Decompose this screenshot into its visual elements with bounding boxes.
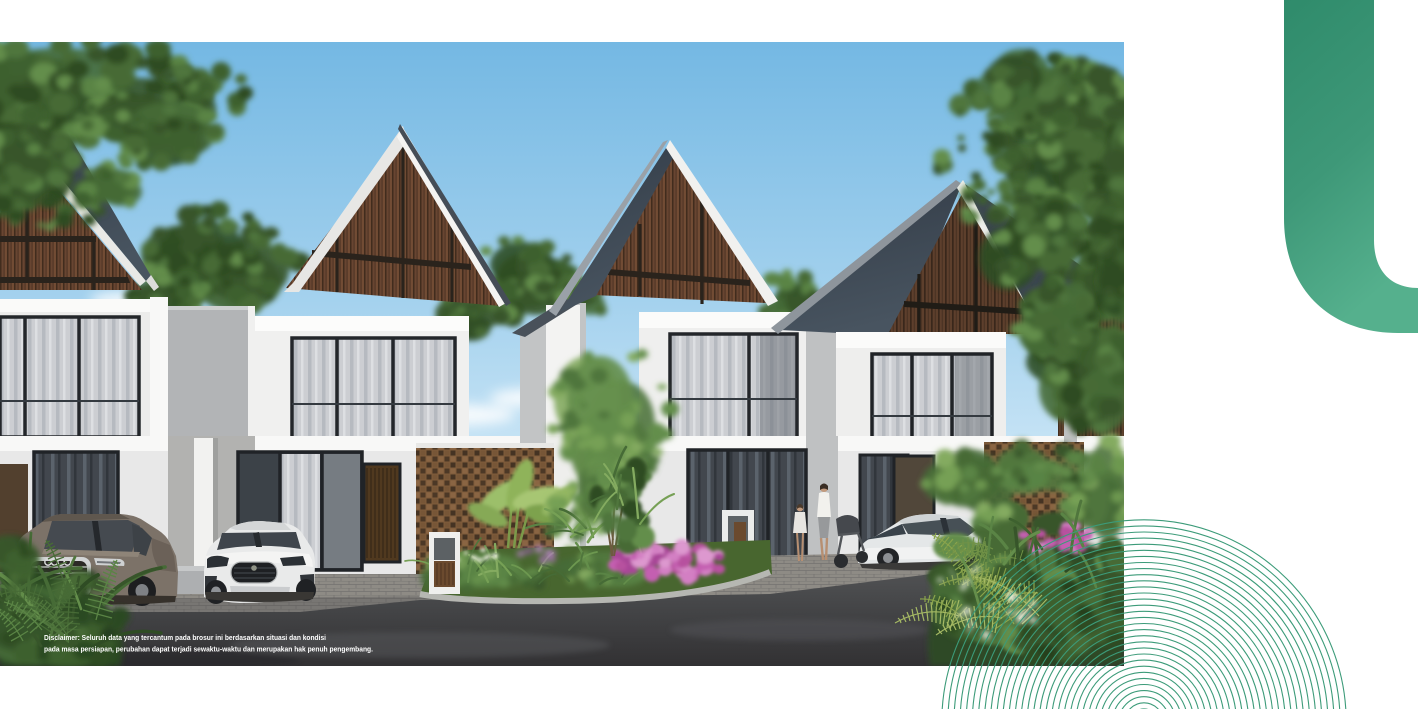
- svg-text:Disclaimer: Seluruh data yang: Disclaimer: Seluruh data yang tercantum …: [44, 633, 326, 642]
- svg-text:pada masa persiapan, perubahan: pada masa persiapan, perubahan dapat ter…: [44, 645, 373, 654]
